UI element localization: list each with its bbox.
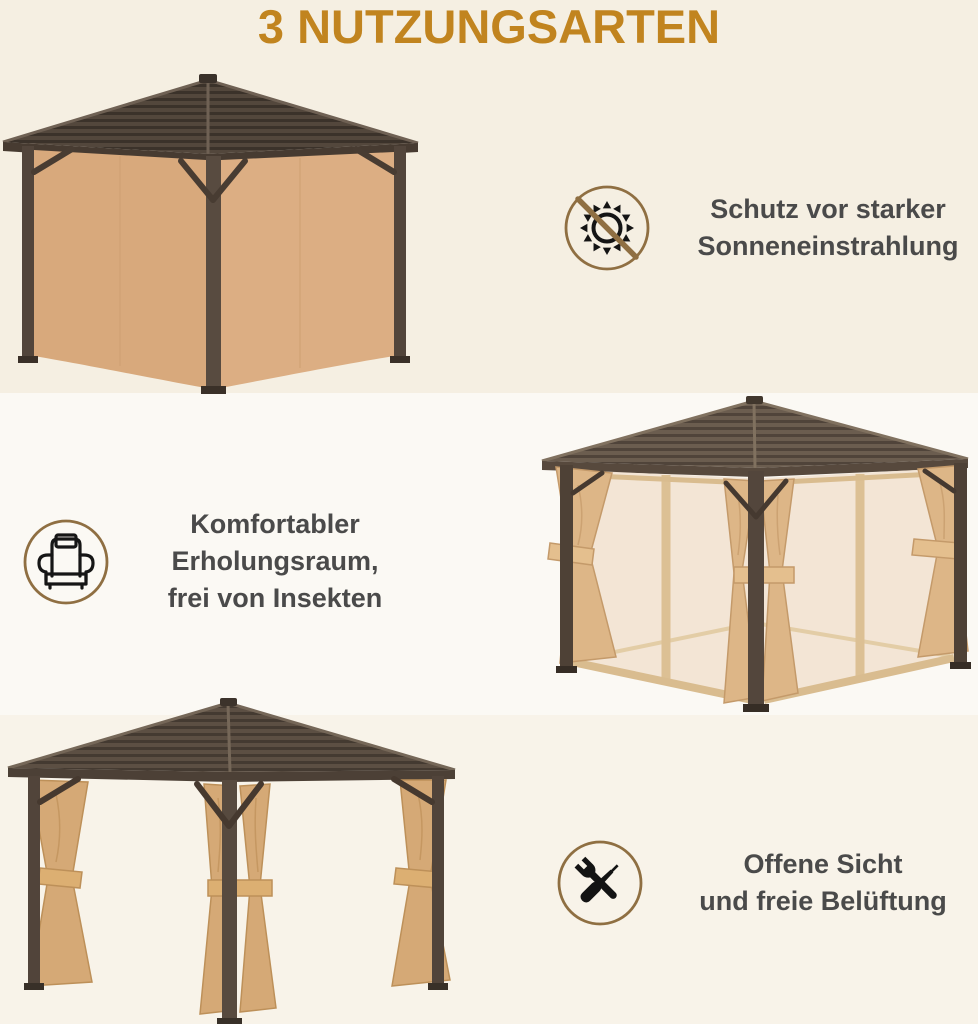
feature-open-view: Offene Sicht und freie Belüftung xyxy=(556,839,976,927)
tools-icon xyxy=(556,839,644,927)
gazebo-mesh-netting-image xyxy=(520,395,978,715)
feature-text-line: frei von Insekten xyxy=(124,580,426,617)
feature-sun-protection-text: Schutz vor starker Sonneneinstrahlung xyxy=(681,191,975,265)
gazebo2-roof xyxy=(542,396,968,477)
feature-text-line: und freie Belüftung xyxy=(670,883,976,920)
gazebo3-frame xyxy=(24,776,448,1024)
gazebo-closed-curtains-image xyxy=(0,66,442,400)
feature-text-line: Offene Sicht xyxy=(670,846,976,883)
gazebo-closed-curtains-svg xyxy=(0,66,442,400)
armchair-icon xyxy=(22,518,110,606)
feature-text-line: Sonneneinstrahlung xyxy=(681,228,975,265)
feature-sun-protection: Schutz vor starker Sonneneinstrahlung xyxy=(563,184,975,272)
feature-text-line: Komfortabler xyxy=(124,506,426,543)
feature-text-line: Schutz vor starker xyxy=(681,191,975,228)
feature-insect-free-text: Komfortabler Erholungsraum, frei von Ins… xyxy=(124,506,426,617)
gazebo-open-tied-curtains-image xyxy=(0,694,492,1024)
gazebo-mesh-netting-svg xyxy=(520,395,978,715)
feature-text-line: Erholungsraum, xyxy=(124,543,426,580)
page-title: 3 NUTZUNGSARTEN xyxy=(0,2,978,52)
gazebo3-roof xyxy=(8,698,455,782)
page-root: 3 NUTZUNGSARTEN xyxy=(0,0,978,1024)
feature-open-view-text: Offene Sicht und freie Belüftung xyxy=(670,846,976,920)
no-sun-icon xyxy=(563,184,651,272)
feature-insect-free: Komfortabler Erholungsraum, frei von Ins… xyxy=(22,506,426,617)
gazebo-open-tied-curtains-svg xyxy=(0,694,492,1024)
